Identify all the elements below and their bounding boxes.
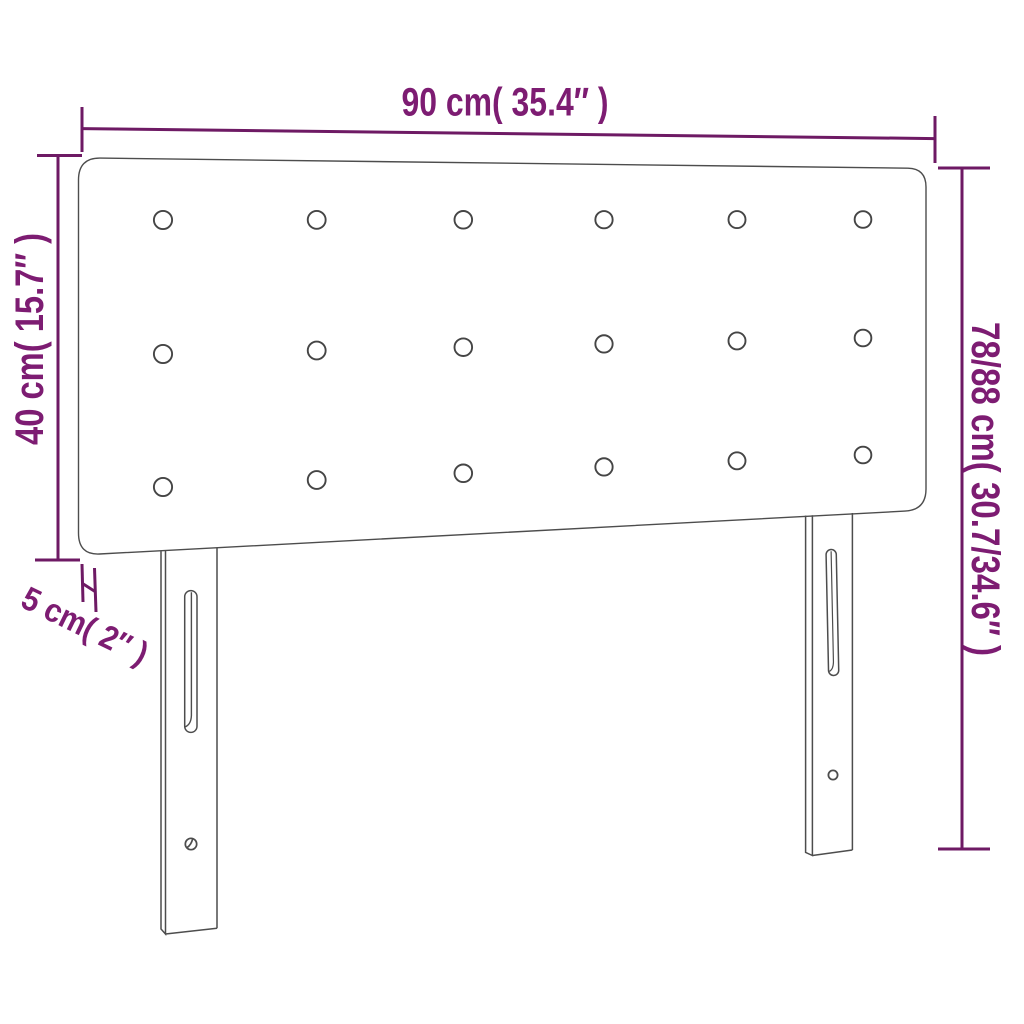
svg-text:40 cm( 15.7″ ): 40 cm( 15.7″ ) [8, 233, 52, 445]
svg-text:78/88 cm( 30.7/34.6″ ): 78/88 cm( 30.7/34.6″ ) [963, 322, 1007, 656]
svg-text:90 cm( 35.4″ ): 90 cm( 35.4″ ) [402, 81, 609, 125]
